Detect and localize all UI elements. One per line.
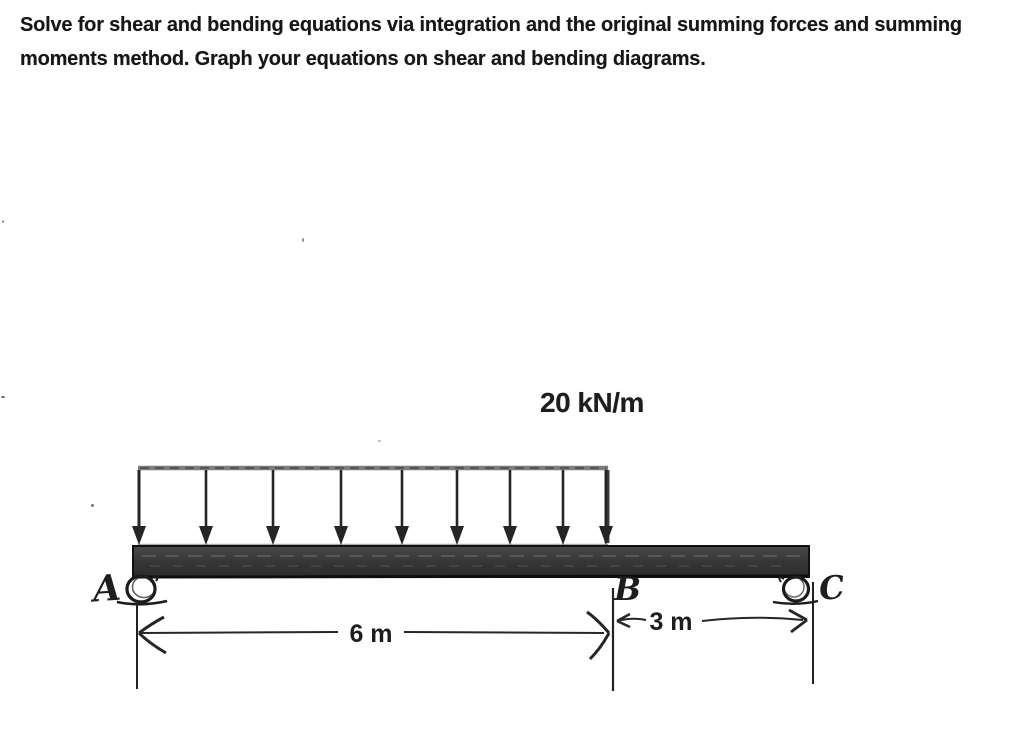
roller-a-circle [127,576,155,602]
load-arrowhead [599,526,613,545]
dim-6m-label: 6 m [349,620,392,648]
beam-bottom-edge [133,576,809,577]
dim-6m-arrowhead-right [587,612,609,659]
dim-3m-line-right [702,618,803,621]
roller-a-circle-overdraw [133,577,156,598]
label-point-b: B [613,570,641,608]
support-a-roller [117,576,167,604]
dim-3m-arrowhead-right [789,610,807,632]
dim-6m-line-left [141,632,338,633]
load-arrowhead [450,526,464,545]
dim-3m-label: 3 m [649,608,692,636]
load-arrowhead [132,526,146,545]
dim-3m-line-left [617,619,646,621]
scanned-document-page: Solve for shear and bending equations vi… [0,0,1024,754]
load-arrowhead [199,526,213,545]
label-support-a: A [88,567,122,611]
roller-c-pen-tail [779,577,784,582]
dim-6m-line-right [404,632,604,633]
load-arrowhead [395,526,409,545]
label-support-c: C [817,568,847,609]
beam-diagram: A B C 6 m 3 m [0,0,1024,754]
beam [133,546,809,577]
load-arrowhead [266,526,280,545]
support-c-roller [773,577,818,604]
dim-6m-arrowhead-left [139,617,166,653]
load-arrowhead [334,526,348,545]
load-arrowhead [556,526,570,545]
load-arrowhead [503,526,517,545]
beam-body [133,546,809,577]
distributed-load-arrows [132,470,613,545]
roller-c-circle-overdraw [784,577,804,597]
dimension-3m [617,610,807,632]
extension-lines [137,582,813,691]
